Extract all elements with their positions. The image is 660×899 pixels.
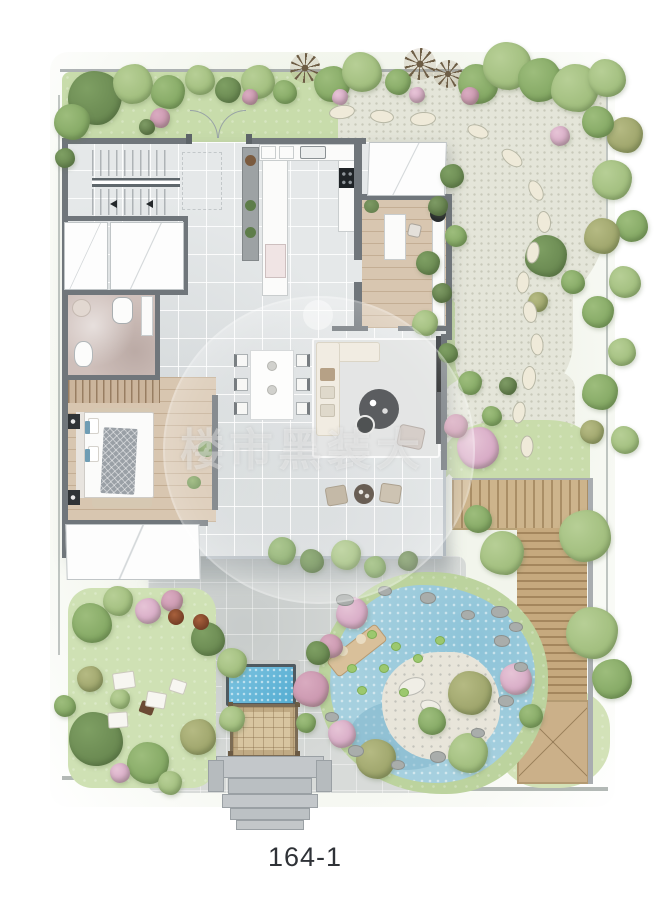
tree bbox=[584, 218, 620, 254]
garden-vegetation-layer bbox=[0, 0, 660, 899]
tree bbox=[268, 537, 296, 565]
pond-rock bbox=[378, 586, 392, 596]
tree bbox=[217, 648, 247, 678]
pond-rock bbox=[430, 751, 446, 762]
lily-pad bbox=[347, 664, 357, 673]
tree bbox=[158, 771, 182, 795]
tree bbox=[611, 426, 639, 454]
tree bbox=[464, 505, 492, 533]
tree bbox=[448, 733, 488, 773]
tree bbox=[110, 689, 130, 709]
tree bbox=[592, 659, 632, 699]
plan-number-label: 164-1 bbox=[240, 842, 370, 873]
pond-rock bbox=[509, 622, 523, 632]
tree bbox=[364, 556, 386, 578]
tree bbox=[582, 106, 614, 138]
flowering-tree bbox=[332, 89, 348, 105]
tree bbox=[432, 283, 452, 303]
tree bbox=[356, 739, 396, 779]
stepping-stone bbox=[410, 111, 437, 127]
pond-rock bbox=[336, 594, 354, 607]
stepping-stone bbox=[520, 435, 534, 457]
flowering-tree bbox=[110, 763, 130, 783]
tree bbox=[219, 706, 245, 732]
stepping-stone bbox=[521, 365, 537, 390]
tree bbox=[440, 164, 464, 188]
stepping-stone bbox=[530, 332, 545, 355]
flowering-tree bbox=[135, 598, 161, 624]
lily-pad bbox=[413, 654, 423, 663]
pond-rock bbox=[498, 695, 514, 706]
lily-pad bbox=[357, 686, 367, 695]
stepping-stone bbox=[525, 177, 547, 203]
lily-pad bbox=[399, 688, 409, 697]
stepping-stone bbox=[536, 210, 552, 233]
tree bbox=[296, 713, 316, 733]
tree bbox=[608, 338, 636, 366]
tree bbox=[215, 77, 241, 103]
flowering-tree bbox=[409, 87, 425, 103]
stepping-stone bbox=[465, 121, 490, 141]
picnic-blanket bbox=[112, 670, 136, 690]
tree bbox=[103, 586, 133, 616]
lily-pad bbox=[391, 642, 401, 651]
tree bbox=[113, 64, 153, 104]
stepping-stone bbox=[511, 400, 528, 424]
tree bbox=[418, 707, 446, 735]
tree bbox=[582, 374, 618, 410]
flowering-tree bbox=[461, 87, 479, 105]
stepping-stone bbox=[369, 108, 394, 123]
picnic-blanket bbox=[145, 690, 167, 709]
pond-rock bbox=[514, 662, 528, 672]
tree bbox=[342, 52, 382, 92]
tree bbox=[448, 671, 492, 715]
tree bbox=[458, 371, 482, 395]
pond-rock bbox=[348, 745, 364, 756]
tree bbox=[54, 695, 76, 717]
tree bbox=[428, 196, 448, 216]
floor-plan-rendering: 楼市黑装大 164-1 bbox=[0, 0, 660, 899]
tree bbox=[55, 148, 75, 168]
tree bbox=[185, 65, 215, 95]
flowering-tree bbox=[293, 671, 329, 707]
pond-rock bbox=[491, 606, 509, 619]
tree bbox=[480, 531, 524, 575]
tree bbox=[559, 510, 611, 562]
tree bbox=[273, 80, 297, 104]
tree bbox=[561, 270, 585, 294]
tree bbox=[499, 377, 517, 395]
tree bbox=[445, 225, 467, 247]
picnic-blanket bbox=[107, 711, 128, 728]
pond-rock bbox=[471, 728, 485, 738]
tree bbox=[588, 59, 626, 97]
tree bbox=[482, 406, 502, 426]
picnic-blanket bbox=[168, 677, 187, 694]
flowering-tree bbox=[550, 126, 570, 146]
tree bbox=[306, 641, 330, 665]
tree bbox=[416, 251, 440, 275]
branch-tree bbox=[404, 48, 436, 80]
lily-pad bbox=[367, 630, 377, 639]
tree bbox=[139, 119, 155, 135]
stepping-stone bbox=[498, 145, 526, 171]
planter-pot bbox=[193, 614, 209, 630]
stepping-stone bbox=[516, 270, 531, 293]
stepping-stone bbox=[328, 103, 356, 120]
flowering-tree bbox=[444, 414, 468, 438]
pond-rock bbox=[391, 760, 405, 770]
tree bbox=[77, 666, 103, 692]
tree bbox=[566, 607, 618, 659]
tree bbox=[331, 540, 361, 570]
tree bbox=[438, 343, 458, 363]
lily-pad bbox=[435, 636, 445, 645]
tree bbox=[300, 549, 324, 573]
pond-rock bbox=[420, 592, 436, 603]
tree bbox=[398, 551, 418, 571]
flowering-tree bbox=[328, 720, 356, 748]
tree bbox=[519, 704, 543, 728]
tree bbox=[609, 266, 641, 298]
planter-pot bbox=[168, 609, 184, 625]
tree bbox=[582, 296, 614, 328]
pond-rock bbox=[494, 635, 510, 646]
tree bbox=[592, 160, 632, 200]
tree bbox=[412, 310, 438, 336]
lily-pad bbox=[379, 664, 389, 673]
tree bbox=[151, 75, 185, 109]
tree bbox=[54, 104, 90, 140]
tree bbox=[580, 420, 604, 444]
tree bbox=[180, 719, 216, 755]
pond-rock bbox=[461, 610, 475, 620]
pond-rock bbox=[325, 712, 339, 722]
tree bbox=[616, 210, 648, 242]
flowering-tree bbox=[242, 89, 258, 105]
